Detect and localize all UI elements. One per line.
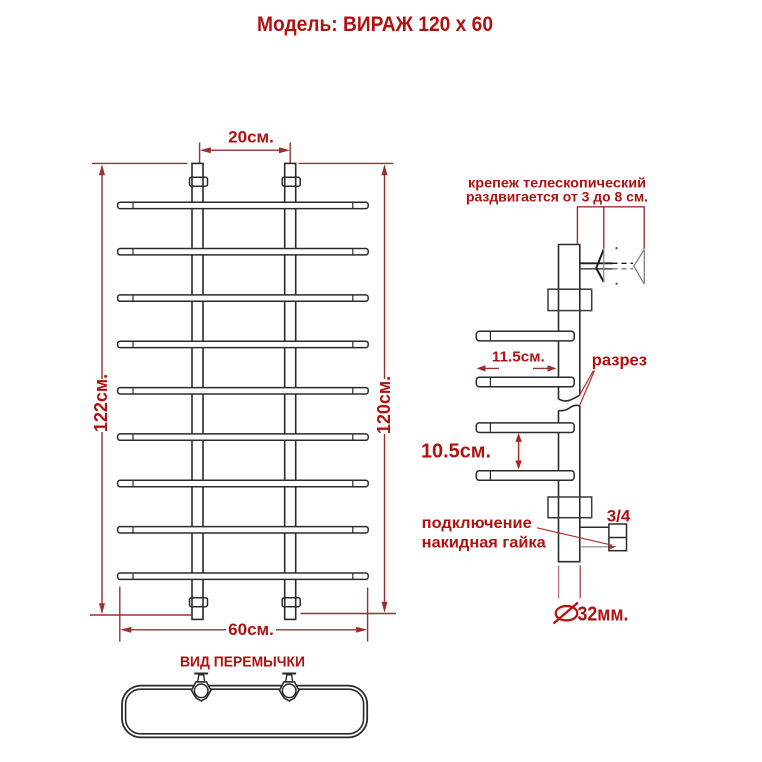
svg-text:раздвигается от 3 до 8 см.: раздвигается от 3 до 8 см.	[466, 190, 648, 205]
svg-text:разрез: разрез	[592, 352, 647, 370]
svg-text:32мм.: 32мм.	[578, 604, 629, 626]
svg-text:ВИД ПЕРЕМЫЧКИ: ВИД ПЕРЕМЫЧКИ	[180, 654, 305, 671]
svg-text:3/4: 3/4	[607, 507, 631, 526]
svg-text:подключение: подключение	[422, 515, 532, 532]
svg-text:60см.: 60см.	[228, 620, 274, 639]
svg-text:накидная гайка: накидная гайка	[422, 535, 546, 552]
svg-text:122см.: 122см.	[91, 374, 111, 432]
svg-text:Модель: ВИРАЖ 120 x 60: Модель: ВИРАЖ 120 x 60	[257, 13, 493, 36]
svg-text:120см.: 120см.	[374, 376, 394, 434]
svg-text:10.5см.: 10.5см.	[421, 440, 491, 462]
svg-text:20см.: 20см.	[228, 128, 274, 147]
svg-text:крепеж телескопический: крепеж телескопический	[468, 175, 646, 190]
svg-text:11.5см.: 11.5см.	[492, 349, 545, 366]
